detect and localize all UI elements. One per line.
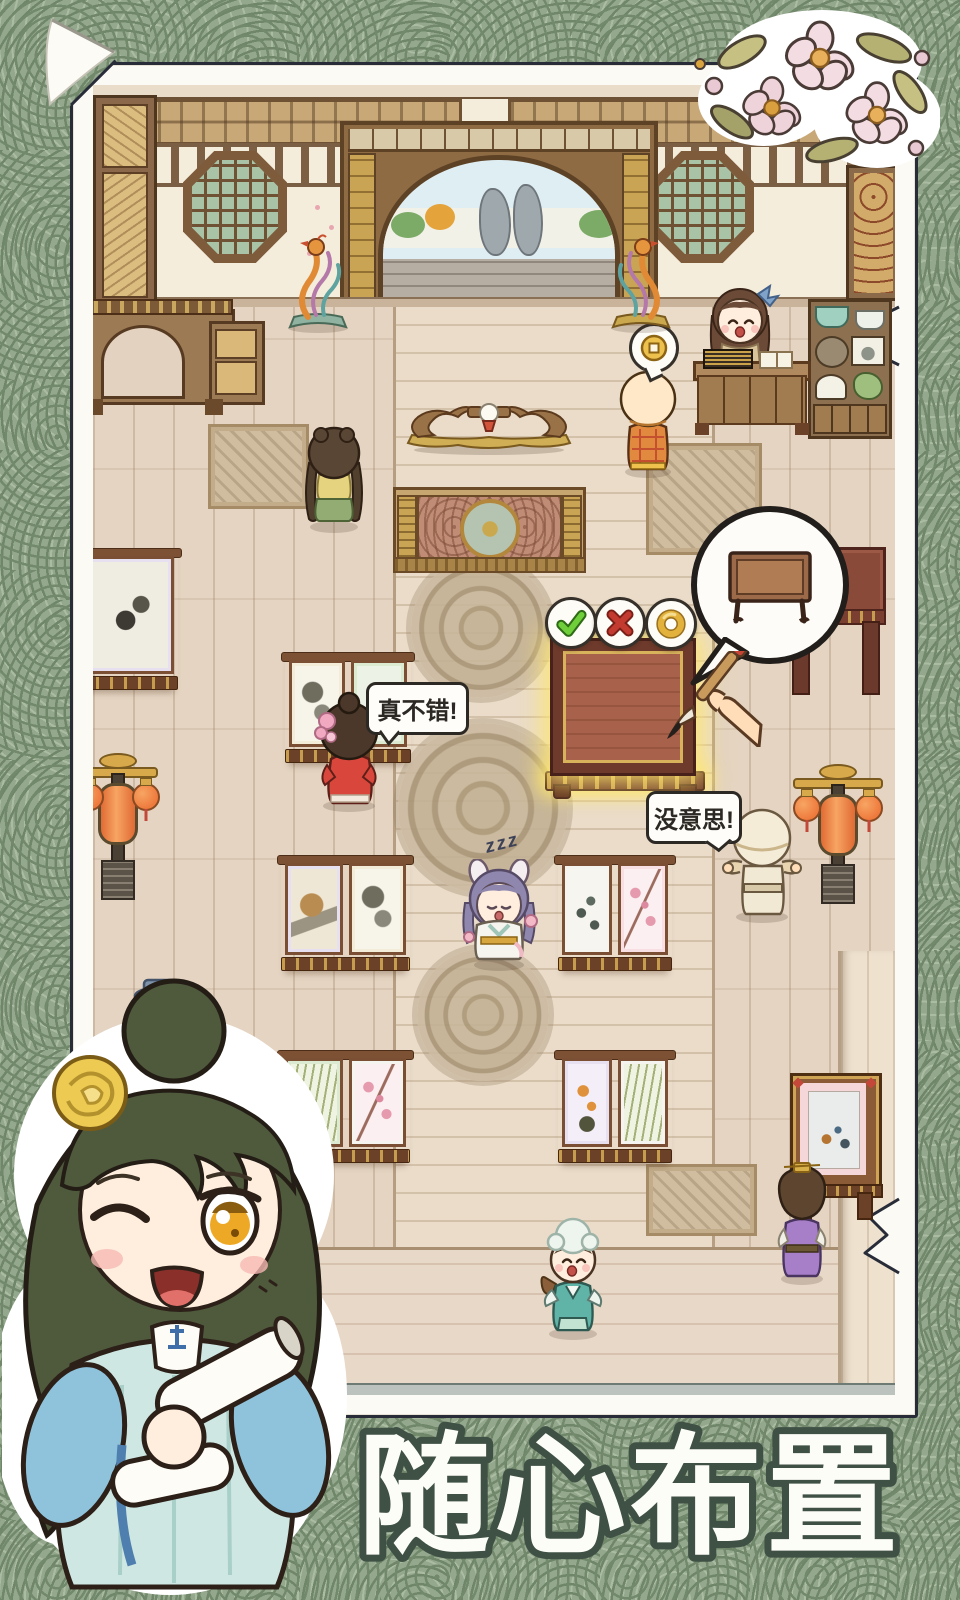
painting-stand[interactable] [281, 855, 410, 971]
open-ledger-book [759, 351, 793, 369]
painting-hand-brush [655, 651, 763, 747]
carved-stone-tile [208, 424, 309, 509]
speech-text: 没意思! [654, 800, 734, 835]
abacus [703, 349, 753, 369]
phoenix-statue-right[interactable] [601, 231, 681, 333]
jade-stone [853, 372, 883, 400]
caption-text: 随心布置 [358, 1424, 902, 1571]
blossom-sticker [672, 0, 940, 190]
placing-easel-base [545, 771, 705, 791]
confirm-button[interactable] [545, 597, 597, 649]
npc-sleepy-bunny-girl[interactable] [449, 859, 549, 971]
dragon-pearl-ornament[interactable] [398, 391, 580, 455]
scroll-painting [562, 1058, 612, 1147]
screen-medallion [460, 499, 520, 559]
page-fold-corner [36, 8, 128, 112]
scroll-painting [349, 1058, 407, 1147]
standing-lantern-left[interactable] [93, 753, 158, 900]
carved-floor-medallion [411, 558, 551, 698]
left-wall-panel [93, 95, 157, 307]
hair-crown [794, 1163, 810, 1172]
npc-twin-tail-girl[interactable] [299, 423, 369, 533]
scroll-painting [349, 863, 407, 955]
speech-bubble-praise: 真不错! [366, 682, 469, 735]
garden-view [378, 155, 620, 311]
standing-lantern-right[interactable] [793, 764, 883, 904]
hair-bun [124, 981, 224, 1081]
scroll-painting [618, 863, 668, 955]
mini-landscape-painting [851, 336, 885, 366]
caption-calligraphy: 随心布置 [335, 1418, 925, 1588]
scroll-painting [285, 863, 343, 955]
painting-stand[interactable] [558, 1050, 672, 1163]
promo-image: 真不错! 没意思! [0, 0, 960, 1600]
yellow-flower [54, 1057, 126, 1129]
npc-monk[interactable] [618, 367, 678, 479]
painting-stand[interactable] [558, 855, 672, 971]
scroll-painting [562, 863, 612, 955]
cancel-button[interactable] [594, 597, 646, 649]
carved-screen-panel[interactable] [393, 487, 586, 573]
lattice-window-left [183, 151, 287, 263]
hand [144, 1407, 204, 1467]
painting-stand[interactable] [93, 548, 178, 690]
shop-counter[interactable] [693, 361, 811, 435]
teapot [815, 336, 849, 368]
phoenix-statue-left[interactable] [278, 231, 358, 333]
carved-stone-tile [646, 1164, 757, 1236]
moon-display-shelf[interactable] [93, 299, 266, 417]
pearl [480, 404, 498, 422]
table-icon [722, 543, 818, 627]
orange-tree [425, 204, 455, 230]
cost-button[interactable] [645, 598, 697, 650]
scroll-painting [93, 556, 174, 674]
copper-coin-icon [640, 334, 668, 362]
x-icon [603, 606, 637, 640]
celadon-bowl [815, 306, 849, 328]
npc-teal-child[interactable] [538, 1214, 608, 1341]
scroll-painting [618, 1058, 668, 1147]
brush-tip [667, 721, 681, 739]
curio-shelf[interactable] [808, 299, 892, 439]
chibi-girl-sticker [2, 975, 347, 1600]
speech-text: 真不错! [378, 691, 458, 726]
speech-bubble-boring: 没意思! [646, 791, 742, 844]
coin-ring-icon [654, 607, 688, 641]
open-eye [202, 1189, 258, 1253]
folding-fan [815, 374, 847, 400]
npc-purple-robe-man[interactable] [774, 1161, 830, 1286]
check-icon [553, 605, 589, 641]
rockery-stone [479, 188, 511, 256]
